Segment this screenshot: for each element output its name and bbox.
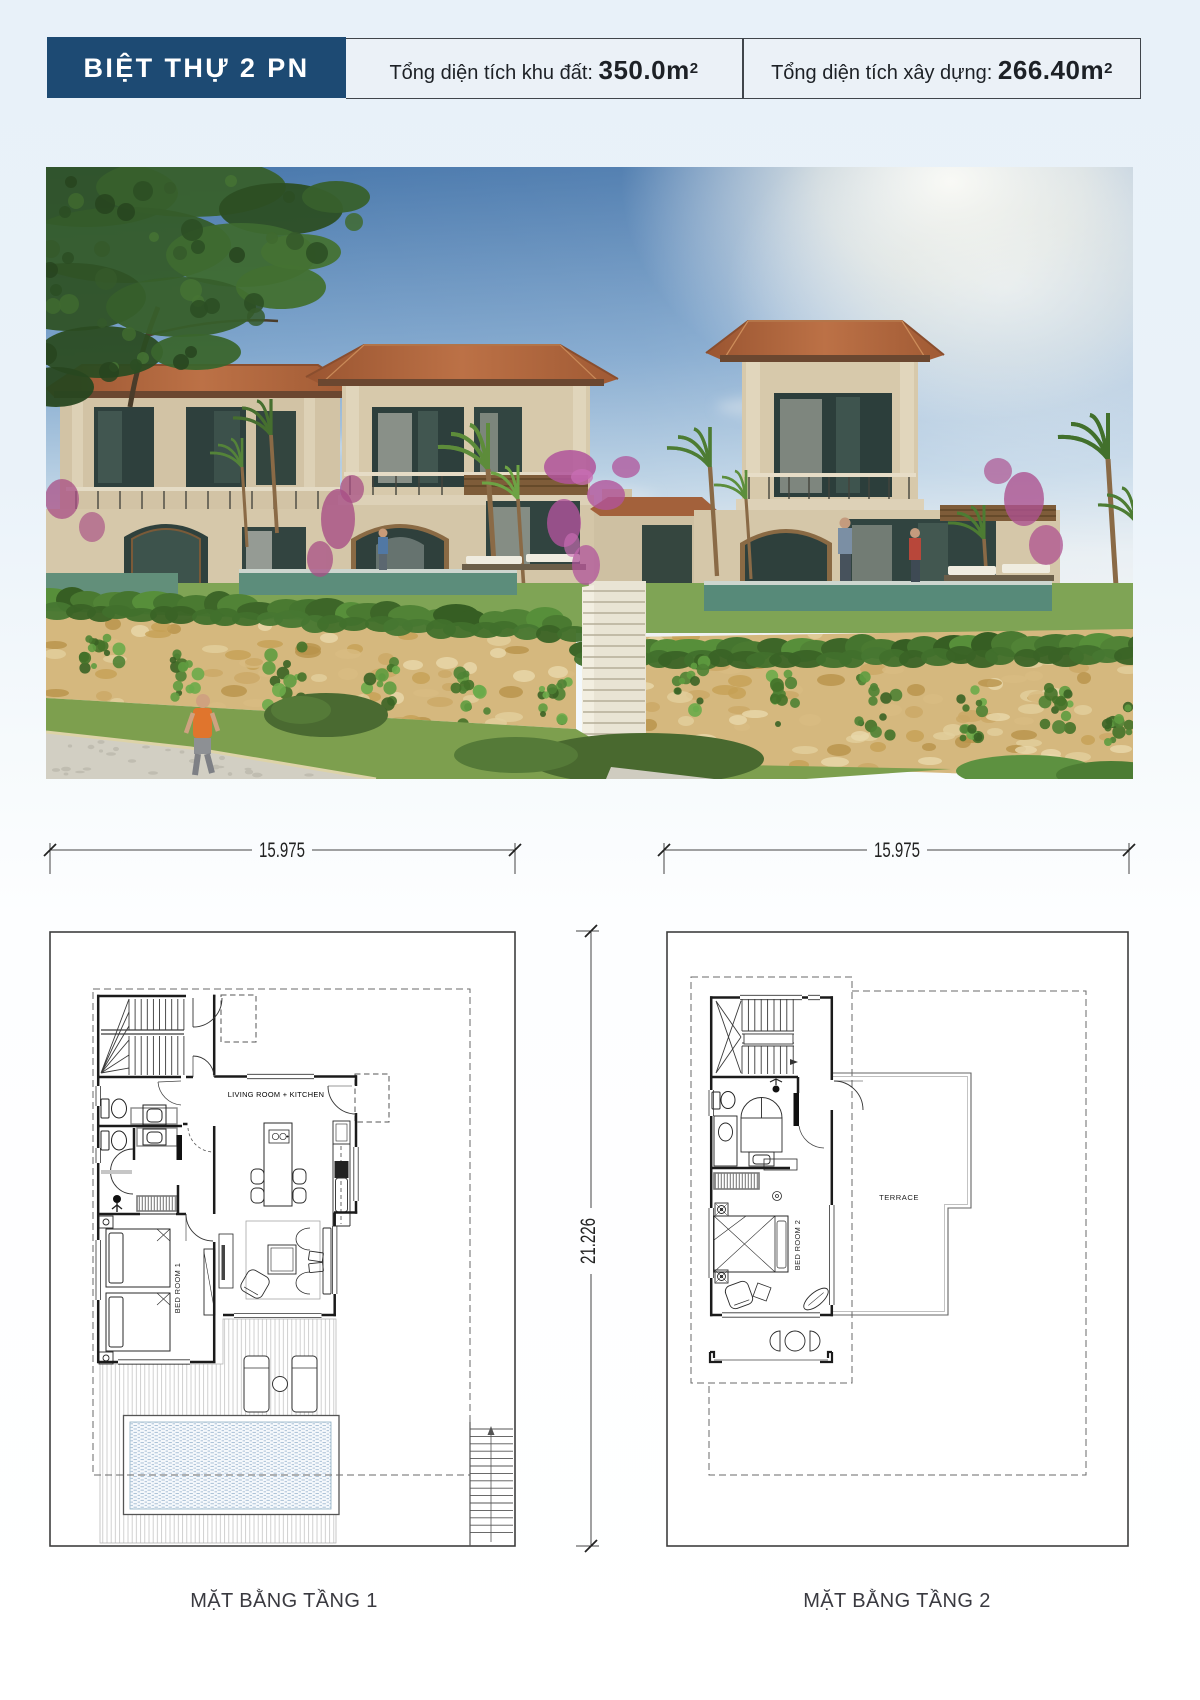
- svg-text:BED ROOM 2: BED ROOM 2: [793, 1220, 802, 1270]
- svg-text:MẶT BẰNG TẦNG 2: MẶT BẰNG TẦNG 2: [803, 1588, 991, 1612]
- svg-text:15.975: 15.975: [259, 839, 305, 862]
- svg-text:MẶT BẰNG TẦNG 1: MẶT BẰNG TẦNG 1: [190, 1588, 378, 1612]
- svg-text:LIVING ROOM + KITCHEN: LIVING ROOM + KITCHEN: [228, 1090, 324, 1099]
- svg-text:21.226: 21.226: [577, 1218, 600, 1264]
- svg-text:BED ROOM 1: BED ROOM 1: [173, 1263, 182, 1313]
- svg-text:15.975: 15.975: [874, 839, 920, 862]
- svg-text:TERRACE: TERRACE: [879, 1193, 919, 1202]
